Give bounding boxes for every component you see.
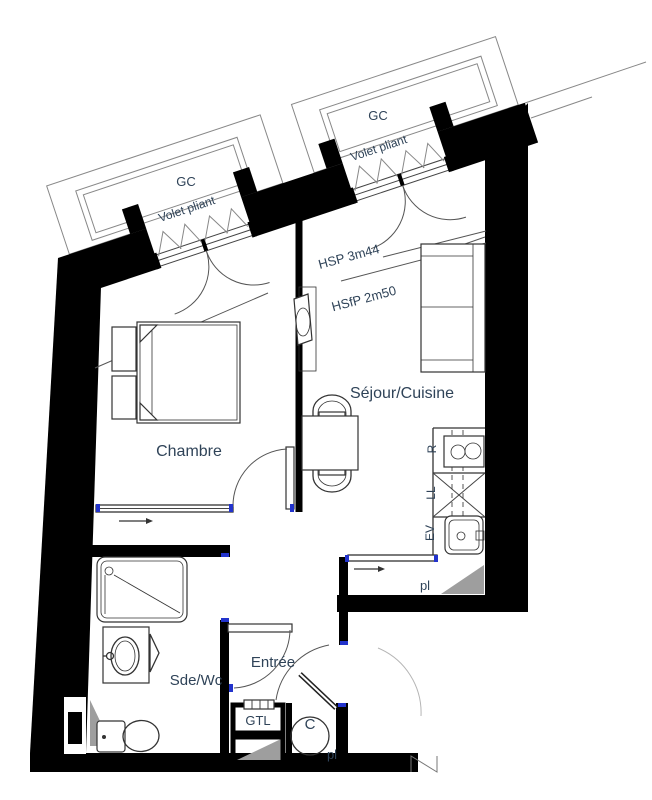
sliding-arrow-icon: [146, 518, 153, 524]
sofa: [421, 244, 485, 372]
room-label-chambre: Chambre: [156, 443, 222, 460]
false-ceiling-height-label: HSfP 2m50: [330, 283, 398, 315]
fridge-label: R: [425, 444, 439, 453]
neighbour-wall-line: [531, 97, 592, 118]
ceiling-height-label: HSP 3m44: [317, 241, 381, 272]
closet-label-kitchen: pl: [420, 578, 430, 593]
dining-table-set: [302, 395, 358, 492]
balcony-left-label: GC: [176, 174, 196, 189]
chambre-closet-front: [96, 505, 233, 524]
dining-table: [302, 416, 358, 470]
washing-machine-label: LL: [424, 486, 438, 500]
sliding-arrow-icon: [378, 566, 385, 572]
sink-label: EV: [423, 525, 437, 541]
neighbour-wall-line: [525, 62, 646, 103]
partition-sdewc-north: [88, 545, 230, 557]
shelf: [150, 634, 159, 672]
nightstand: [112, 376, 136, 419]
exterior-wall-left: [30, 258, 101, 753]
shower: [97, 557, 187, 622]
balcony-right-label: GC: [368, 108, 388, 123]
washing-machine: [433, 473, 485, 517]
water-heater-label: C: [305, 716, 316, 733]
corridor-door-arc: [378, 648, 421, 716]
room-label-sejour: Séjour/Cuisine: [350, 385, 454, 402]
kitchen-closet-front: [348, 555, 437, 572]
closet-wall-right: [336, 703, 348, 763]
room-label-entree: Entrée: [251, 654, 295, 671]
toilet: [97, 719, 160, 753]
bed: [137, 322, 240, 423]
kitchen-counter: [433, 428, 485, 555]
duct-triangle: [441, 565, 484, 594]
gtl-label: GTL: [245, 713, 270, 728]
floor-plan-drawing: GC GC Volet pliant Volet pliant HSP 3m44…: [0, 0, 652, 800]
exterior-wall-bottom-right: [337, 595, 528, 612]
cooktop: [444, 436, 484, 467]
shaft-block: [68, 712, 82, 744]
partition-hall-east: [339, 557, 348, 645]
exterior-wall-bottom: [30, 753, 418, 772]
chambre-door: [233, 447, 294, 509]
gtl-duct-icon: [244, 700, 274, 709]
exterior-wall-right: [485, 103, 528, 598]
nightstand: [112, 327, 136, 371]
window-reveal: [318, 139, 342, 169]
washbasin: [103, 627, 159, 683]
closet-label-entree: pl: [327, 747, 337, 762]
room-label-sdewc: Sde/Wc: [170, 672, 223, 689]
kitchen-sink: [445, 516, 484, 554]
floor-plan-page: GC GC Volet pliant Volet pliant HSP 3m44…: [0, 0, 652, 800]
